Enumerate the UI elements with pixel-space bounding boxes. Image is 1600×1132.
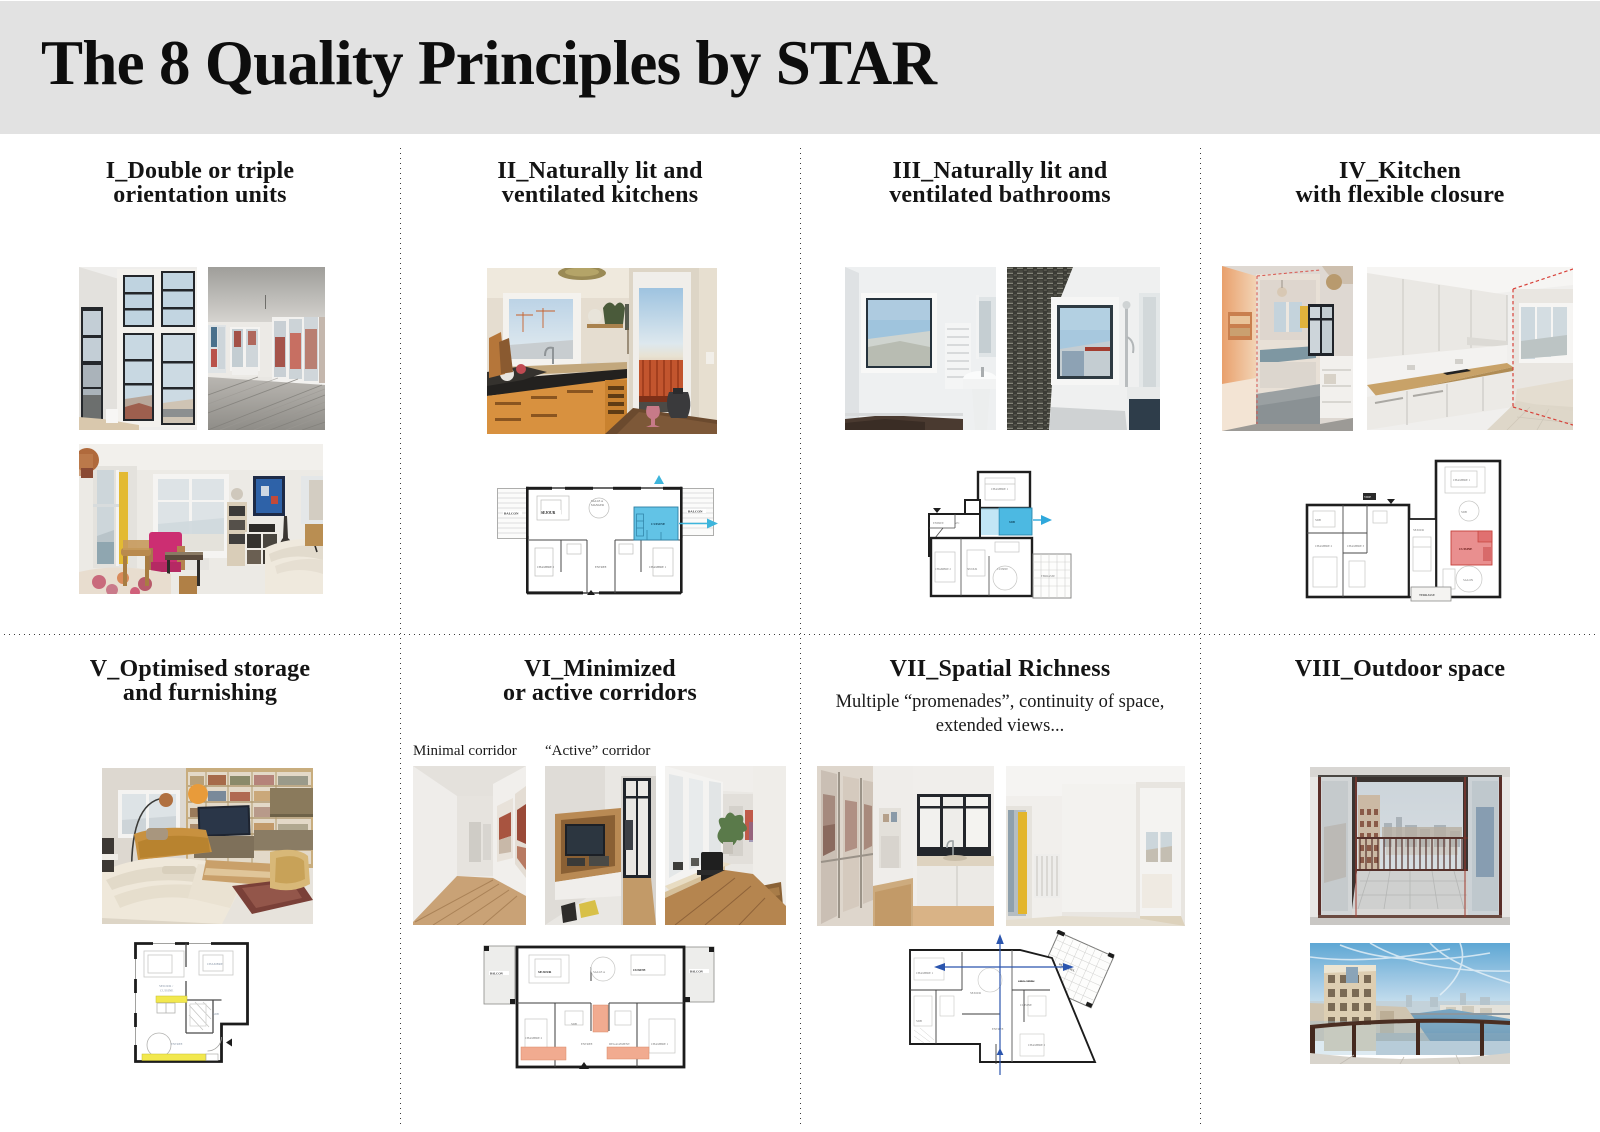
svg-text:ENTREE: ENTREE [595,565,607,569]
svg-text:SEJOUR: SEJOUR [967,568,977,571]
svg-text:CHAMBRE 2: CHAMBRE 2 [525,1036,543,1040]
svg-text:CHAMBRE 1: CHAMBRE 1 [1453,478,1471,482]
svg-text:CHAMBRE 1: CHAMBRE 1 [651,1042,669,1046]
svg-text:BALCON: BALCON [688,510,703,514]
svg-text:CUISINE: CUISINE [1459,547,1472,551]
svg-text:SEJOUR: SEJOUR [541,511,556,515]
svg-text:SEJOUR: SEJOUR [1413,528,1424,532]
svg-text:TERRASSE: TERRASSE [1041,575,1055,578]
svg-text:SDB: SDB [571,1022,577,1026]
svg-text:BALCON: BALCON [690,970,704,974]
svg-text:DEGAGEMENT: DEGAGEMENT [609,1042,630,1046]
svg-text:salon-cuisine: salon-cuisine [1018,979,1035,983]
svg-text:ENTREE: ENTREE [171,1042,183,1046]
svg-text:CUISINE: CUISINE [997,568,1008,571]
svg-text:CUISINE: CUISINE [160,989,173,993]
svg-text:SDB: SDB [1461,510,1467,514]
svg-text:BALCON: BALCON [504,512,519,516]
svg-text:SEJOUR /: SEJOUR / [159,984,173,988]
svg-text:CHAMBRE 2: CHAMBRE 2 [1315,544,1333,548]
svg-text:BALCON: BALCON [490,972,504,976]
svg-text:CUISINE: CUISINE [651,522,666,526]
svg-text:MANGER: MANGER [591,503,604,507]
svg-text:CHAMBRE 2: CHAMBRE 2 [1028,1043,1046,1047]
svg-text:SDB: SDB [213,1012,219,1016]
svg-text:VIDE: VIDE [1364,495,1371,499]
svg-text:CHAMBRE 1: CHAMBRE 1 [916,971,934,975]
svg-text:SDB: SDB [1315,518,1321,522]
svg-text:CHAMBRE 1: CHAMBRE 1 [649,565,667,569]
svg-text:CHAMBRE: CHAMBRE [207,962,223,966]
svg-text:ENTREE: ENTREE [933,522,944,525]
svg-text:SALLE A: SALLE A [593,970,606,974]
svg-text:CUISINE: CUISINE [1020,1003,1032,1007]
svg-text:SDB: SDB [1009,520,1015,524]
svg-text:CHAMBRE 3: CHAMBRE 3 [1347,544,1365,548]
svg-text:ENTREE: ENTREE [581,1042,593,1046]
svg-text:CHAMBRE 1: CHAMBRE 1 [991,487,1009,491]
svg-text:SEJOUR: SEJOUR [538,970,552,974]
svg-text:WC: WC [955,522,960,525]
svg-text:TERRASSE: TERRASSE [1419,593,1435,597]
svg-text:CHAMBRE 2: CHAMBRE 2 [537,565,555,569]
svg-text:ENTREE: ENTREE [992,1027,1004,1031]
svg-text:CHAMBRE 2: CHAMBRE 2 [935,568,952,571]
svg-text:SEJOUR: SEJOUR [970,991,981,995]
svg-text:SALON: SALON [1463,578,1474,582]
svg-text:CUISINE: CUISINE [633,968,646,972]
svg-text:SDB: SDB [916,1019,922,1023]
